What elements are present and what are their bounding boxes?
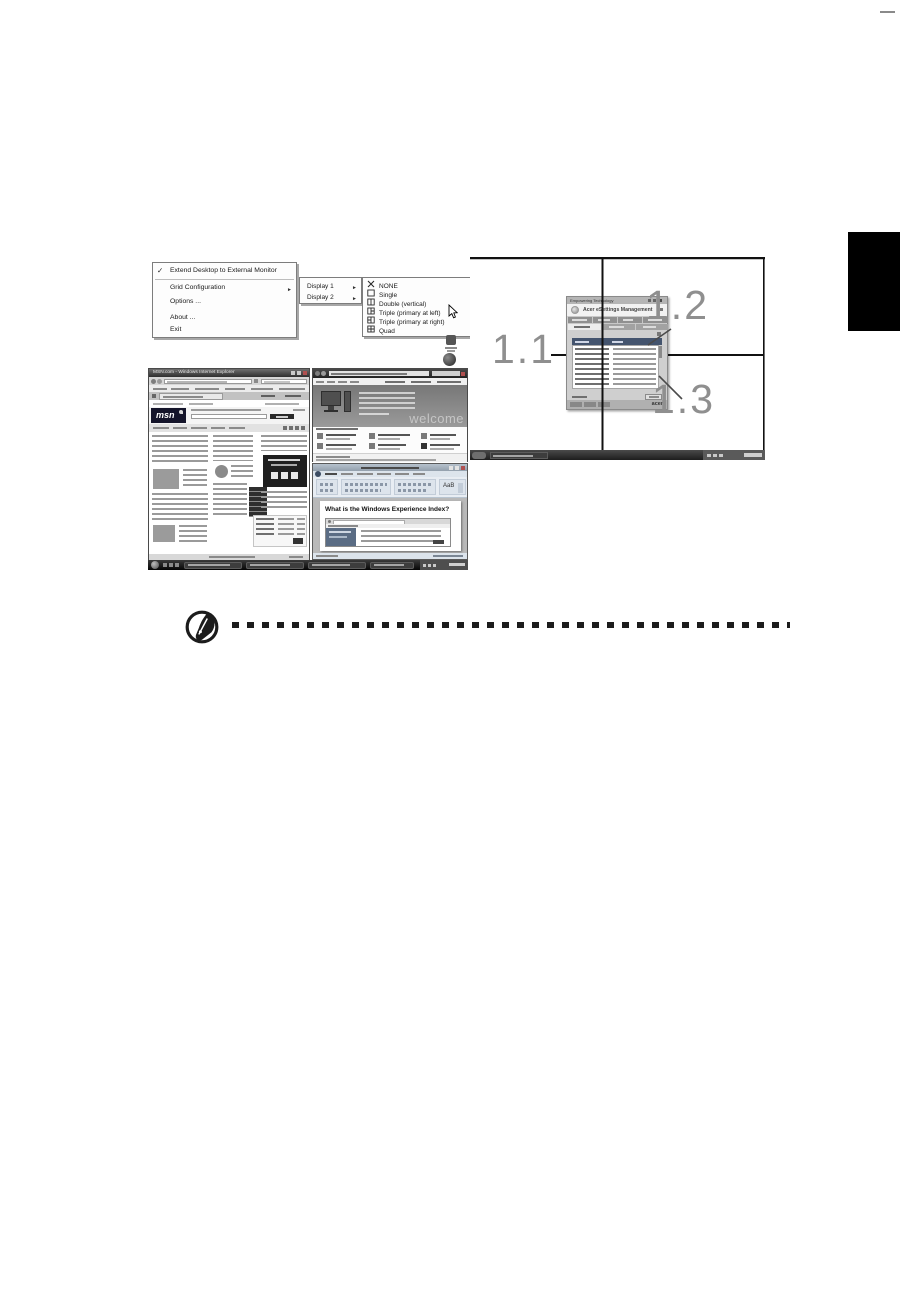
- text-lines-placeholder: [575, 348, 609, 387]
- maximize-icon[interactable]: [297, 371, 301, 375]
- menu-item-label: Grid Configuration: [170, 282, 225, 294]
- welcome-hero: welcome: [313, 385, 467, 427]
- ribbon-tab[interactable]: [395, 473, 409, 475]
- article-photo: [153, 525, 175, 542]
- msn-search-input[interactable]: [191, 414, 267, 419]
- menu-item-display-2[interactable]: Display 2 ►: [300, 291, 361, 302]
- article-photo: [153, 469, 179, 489]
- chapter-side-tab: [848, 232, 900, 331]
- acer-app-icon: [571, 306, 579, 314]
- ie-window-title: MSN.com - Windows Internet Explorer: [153, 370, 235, 375]
- ie-tab-row: [149, 392, 309, 400]
- word-doc-area: What is the Windows Experience Index?: [313, 498, 467, 553]
- welcome-center-window: welcome: [312, 368, 468, 462]
- ad-box: [281, 472, 288, 479]
- task-item[interactable]: [317, 443, 363, 452]
- menu-item-quad[interactable]: Quad: [363, 325, 472, 334]
- tab[interactable]: [602, 324, 635, 330]
- text-lines-placeholder: [152, 493, 208, 521]
- ad-box: [291, 472, 298, 479]
- profile-photo: [215, 465, 228, 478]
- menu-item-display-1[interactable]: Display 1 ►: [300, 280, 361, 291]
- desktop-shortcut-globe-icon[interactable]: [443, 353, 456, 366]
- submenu-arrow-icon: ►: [287, 284, 292, 296]
- menu-item-exit[interactable]: Exit: [153, 324, 296, 336]
- taskbar-window-button[interactable]: [490, 452, 548, 459]
- go-button[interactable]: [293, 538, 303, 544]
- msn-search-button[interactable]: [270, 414, 294, 419]
- text-lines-placeholder: [359, 392, 415, 410]
- maximize-icon[interactable]: [455, 466, 459, 470]
- forward-icon[interactable]: [321, 371, 326, 376]
- task-item[interactable]: [317, 433, 363, 442]
- launch-button[interactable]: [584, 402, 596, 407]
- display-submenu: Display 1 ► Display 2 ►: [299, 277, 362, 304]
- quicklaunch-icon[interactable]: [169, 563, 173, 567]
- browser-tab-active[interactable]: [159, 393, 223, 400]
- callout-label-1-3: 1.3: [652, 379, 715, 420]
- breadcrumb-field[interactable]: [329, 371, 429, 376]
- tools-menu[interactable]: [285, 395, 301, 397]
- welcome-titlebar[interactable]: [313, 369, 467, 378]
- manual-page: ✓ Extend Desktop to External Monitor Gri…: [0, 0, 900, 1291]
- ribbon-group-styles: AaB: [439, 479, 466, 495]
- address-input[interactable]: [164, 379, 252, 384]
- welcome-footer: [313, 453, 467, 462]
- ie-address-row: [149, 377, 309, 385]
- menu-item-options[interactable]: Options ...: [153, 296, 296, 308]
- text-lines-placeholder: [179, 525, 207, 542]
- ie-titlebar[interactable]: MSN.com - Windows Internet Explorer: [149, 369, 309, 377]
- desktop-taskbar: [148, 560, 468, 570]
- ad-box: [271, 472, 278, 479]
- text-lines-placeholder: [231, 465, 253, 478]
- system-tray: [703, 450, 765, 460]
- embedded-screenshot: [325, 518, 451, 547]
- ad-banner: [263, 455, 307, 487]
- close-icon[interactable]: [461, 466, 465, 470]
- back-icon[interactable]: [315, 371, 320, 376]
- crop-mark: [880, 11, 895, 13]
- tab[interactable]: [618, 317, 642, 323]
- quad-display-figure: Empowering Technology Acer eSettings Man…: [470, 257, 765, 460]
- triple-right-layout-icon: [367, 316, 375, 324]
- task-item[interactable]: [421, 443, 465, 452]
- ribbon: AaB: [313, 477, 467, 498]
- menu-item-label: Extend Desktop to External Monitor: [170, 265, 277, 277]
- minimize-icon[interactable]: [449, 466, 453, 470]
- doc-heading: What is the Windows Experience Index?: [325, 506, 449, 513]
- msn-nav-row: [149, 424, 309, 432]
- launch-button[interactable]: [598, 402, 610, 407]
- styles-sample-text: AaB: [443, 483, 454, 489]
- taskbar-window-button[interactable]: [184, 562, 242, 569]
- single-layout-icon: [367, 289, 375, 297]
- menu-item-label: Options ...: [170, 296, 201, 308]
- triple-left-layout-icon: [367, 307, 375, 315]
- close-icon[interactable]: [461, 372, 465, 376]
- ribbon-tab[interactable]: [325, 473, 337, 475]
- embedded-sidebar: [326, 528, 356, 546]
- forward-icon[interactable]: [157, 379, 162, 384]
- empowering-strip-label: Empowering Technology: [570, 298, 614, 303]
- butterfly-icon: [179, 410, 183, 414]
- system-tray: [420, 560, 468, 570]
- tab[interactable]: [593, 317, 617, 323]
- computer-icon: [321, 391, 351, 419]
- msn-top-links: [149, 400, 309, 407]
- refresh-mini-icon[interactable]: [657, 332, 661, 336]
- task-item[interactable]: [421, 433, 465, 442]
- task-item[interactable]: [369, 433, 415, 442]
- text-lines-placeholder: [361, 530, 441, 542]
- menu-item-label: Quad: [379, 326, 395, 338]
- launch-button[interactable]: [570, 402, 582, 407]
- window-title: Acer eSettings Management: [583, 307, 652, 313]
- taskbar-window-button[interactable]: [246, 562, 304, 569]
- table-header: [572, 338, 662, 345]
- msn-header: msn: [149, 407, 309, 424]
- welcome-tasks-panel: [313, 427, 467, 453]
- taskbar-window-button[interactable]: [370, 562, 414, 569]
- menu-item-none[interactable]: NONE: [363, 280, 472, 289]
- ribbon-tab[interactable]: [413, 473, 425, 475]
- text-lines-placeholder: [183, 469, 207, 489]
- ribbon-group-clipboard: [316, 479, 338, 495]
- page-menu[interactable]: [261, 395, 275, 397]
- ie-toolbar-row: [149, 385, 309, 392]
- desktop-screenshot: MSN.com - Windows Internet Explorer: [148, 368, 468, 570]
- welcome-menubar: [313, 378, 467, 385]
- view-toggle-icons[interactable]: [283, 426, 305, 430]
- text-lines-placeholder: [256, 518, 274, 538]
- document-page: What is the Windows Experience Index?: [320, 501, 461, 551]
- double-vertical-layout-icon: [367, 298, 375, 306]
- search-input[interactable]: [432, 371, 460, 376]
- word-window: AaB What is the Windows Experience Index…: [312, 463, 468, 560]
- favicon: [152, 394, 156, 398]
- text-lines-placeholder: [261, 435, 307, 451]
- note-pen-icon: [184, 609, 220, 645]
- msn-logo: msn: [151, 408, 186, 423]
- ribbon-group-paragraph: [394, 479, 436, 495]
- text-lines-placeholder: [278, 518, 294, 538]
- quicklaunch-icon[interactable]: [163, 563, 167, 567]
- ribbon-group-font: [341, 479, 391, 495]
- system-info-table: [572, 345, 659, 389]
- clock: [449, 563, 465, 566]
- menu-separator: [155, 279, 294, 280]
- word-titlebar[interactable]: [313, 464, 467, 471]
- menu-item-single[interactable]: Single: [363, 289, 472, 298]
- callout-label-1-2: 1.2: [646, 285, 709, 326]
- note-dashed-separator: [232, 622, 790, 628]
- menu-item-label: About ...: [170, 312, 195, 324]
- search-input[interactable]: [261, 379, 307, 384]
- none-x-icon: [367, 280, 375, 288]
- desktop-shortcut-icon[interactable]: [444, 335, 458, 352]
- ribbon-tab[interactable]: [357, 473, 373, 475]
- quicklaunch-icon[interactable]: [175, 563, 179, 567]
- word-status-bar: [313, 553, 467, 559]
- callout-label-1-1: 1.1: [492, 329, 555, 370]
- welcome-watermark: welcome: [409, 411, 464, 426]
- ribbon-tab[interactable]: [377, 473, 391, 475]
- menu-item-label: Exit: [170, 324, 181, 336]
- stock-quotes-panel: [253, 515, 307, 547]
- menu-item-extend-desktop[interactable]: ✓ Extend Desktop to External Monitor: [153, 265, 296, 277]
- clock: [744, 453, 762, 457]
- text-lines-placeholder: [613, 348, 656, 387]
- ribbon-tab[interactable]: [341, 473, 353, 475]
- check-icon: ✓: [157, 265, 163, 277]
- text-lines-placeholder: [297, 518, 305, 538]
- text-lines-placeholder: [213, 435, 253, 461]
- msn-logo-text: msn: [156, 410, 175, 420]
- ie-msn-window: MSN.com - Windows Internet Explorer: [148, 368, 310, 560]
- tray-menu-screenshot: ✓ Extend Desktop to External Monitor Gri…: [150, 260, 480, 372]
- quad-layout-icon: [367, 325, 375, 333]
- refresh-icon[interactable]: [254, 379, 258, 383]
- text-lines-placeholder: [152, 435, 208, 465]
- submenu-arrow-icon: ►: [352, 293, 357, 305]
- tab-active[interactable]: [568, 324, 601, 330]
- menu-item-about[interactable]: About ...: [153, 312, 296, 324]
- menu-item-grid-configuration[interactable]: Grid Configuration ►: [153, 282, 296, 294]
- text-lines-placeholder: [213, 483, 247, 515]
- start-orb[interactable]: [151, 561, 159, 569]
- tray-context-menu: ✓ Extend Desktop to External Monitor Gri…: [152, 262, 297, 338]
- mouse-cursor-icon: [448, 304, 458, 319]
- back-icon[interactable]: [151, 379, 156, 384]
- minimize-icon[interactable]: [291, 371, 295, 375]
- text-lines-placeholder: [261, 491, 307, 511]
- zoom-slider[interactable]: [433, 555, 463, 557]
- task-item[interactable]: [369, 443, 415, 452]
- tab[interactable]: [568, 317, 592, 323]
- menu-item-label: Display 2: [307, 292, 334, 304]
- start-button[interactable]: [472, 452, 486, 459]
- embedded-button: [433, 540, 444, 544]
- close-icon[interactable]: [303, 371, 307, 375]
- taskbar-window-button[interactable]: [308, 562, 366, 569]
- figure-taskbar: [470, 450, 765, 460]
